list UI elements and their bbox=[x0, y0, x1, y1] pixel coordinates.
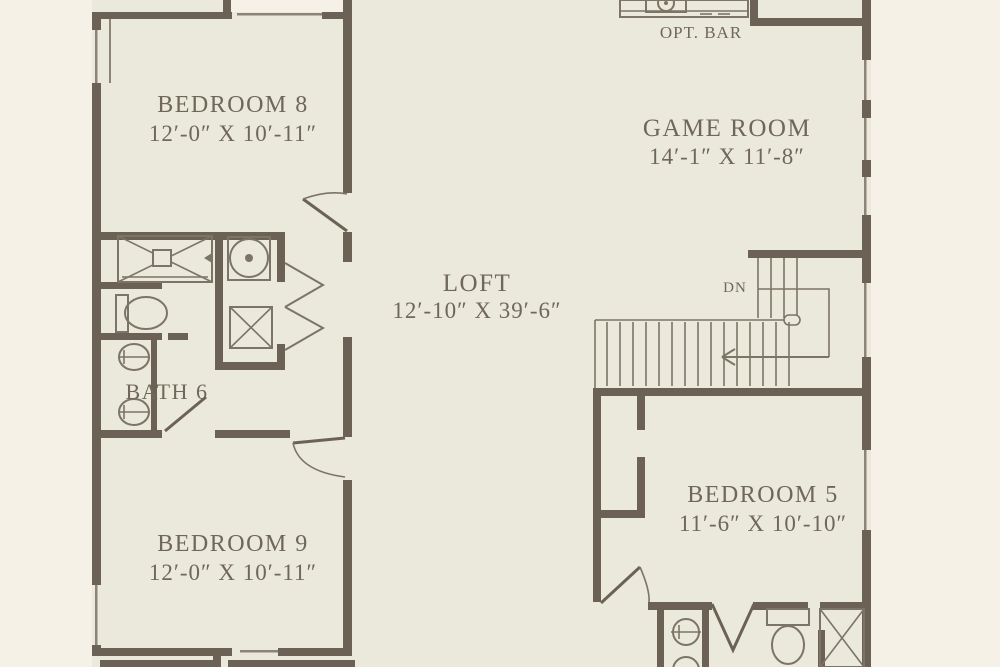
label-bedroom5-dims: 11′-6″ X 10′-10″ bbox=[679, 511, 847, 536]
label-bedroom5-name: BEDROOM 5 bbox=[687, 482, 839, 508]
label-loft-dims: 12′-10″ X 39′-6″ bbox=[392, 298, 561, 323]
label-gameroom-dims: 14′-1″ X 11′-8″ bbox=[649, 144, 805, 169]
label-bath6-name: BATH 6 bbox=[126, 379, 209, 404]
label-loft-name: LOFT bbox=[443, 270, 512, 297]
label-bedroom9-name: BEDROOM 9 bbox=[157, 531, 309, 557]
label-stairs-down: DN bbox=[723, 280, 747, 296]
label-bedroom9-dims: 12′-0″ X 10′-11″ bbox=[149, 560, 317, 585]
label-gameroom-name: GAME ROOM bbox=[643, 115, 811, 142]
floor-plan-drawing: BEDROOM 8 12′-0″ X 10′-11″ GAME ROOM 14′… bbox=[0, 0, 1000, 667]
label-bedroom8-dims: 12′-0″ X 10′-11″ bbox=[149, 121, 317, 146]
label-opt-bar: OPT. BAR bbox=[660, 23, 742, 42]
label-bedroom8-name: BEDROOM 8 bbox=[157, 92, 309, 118]
floor-plan: BEDROOM 8 12′-0″ X 10′-11″ GAME ROOM 14′… bbox=[0, 0, 1000, 667]
